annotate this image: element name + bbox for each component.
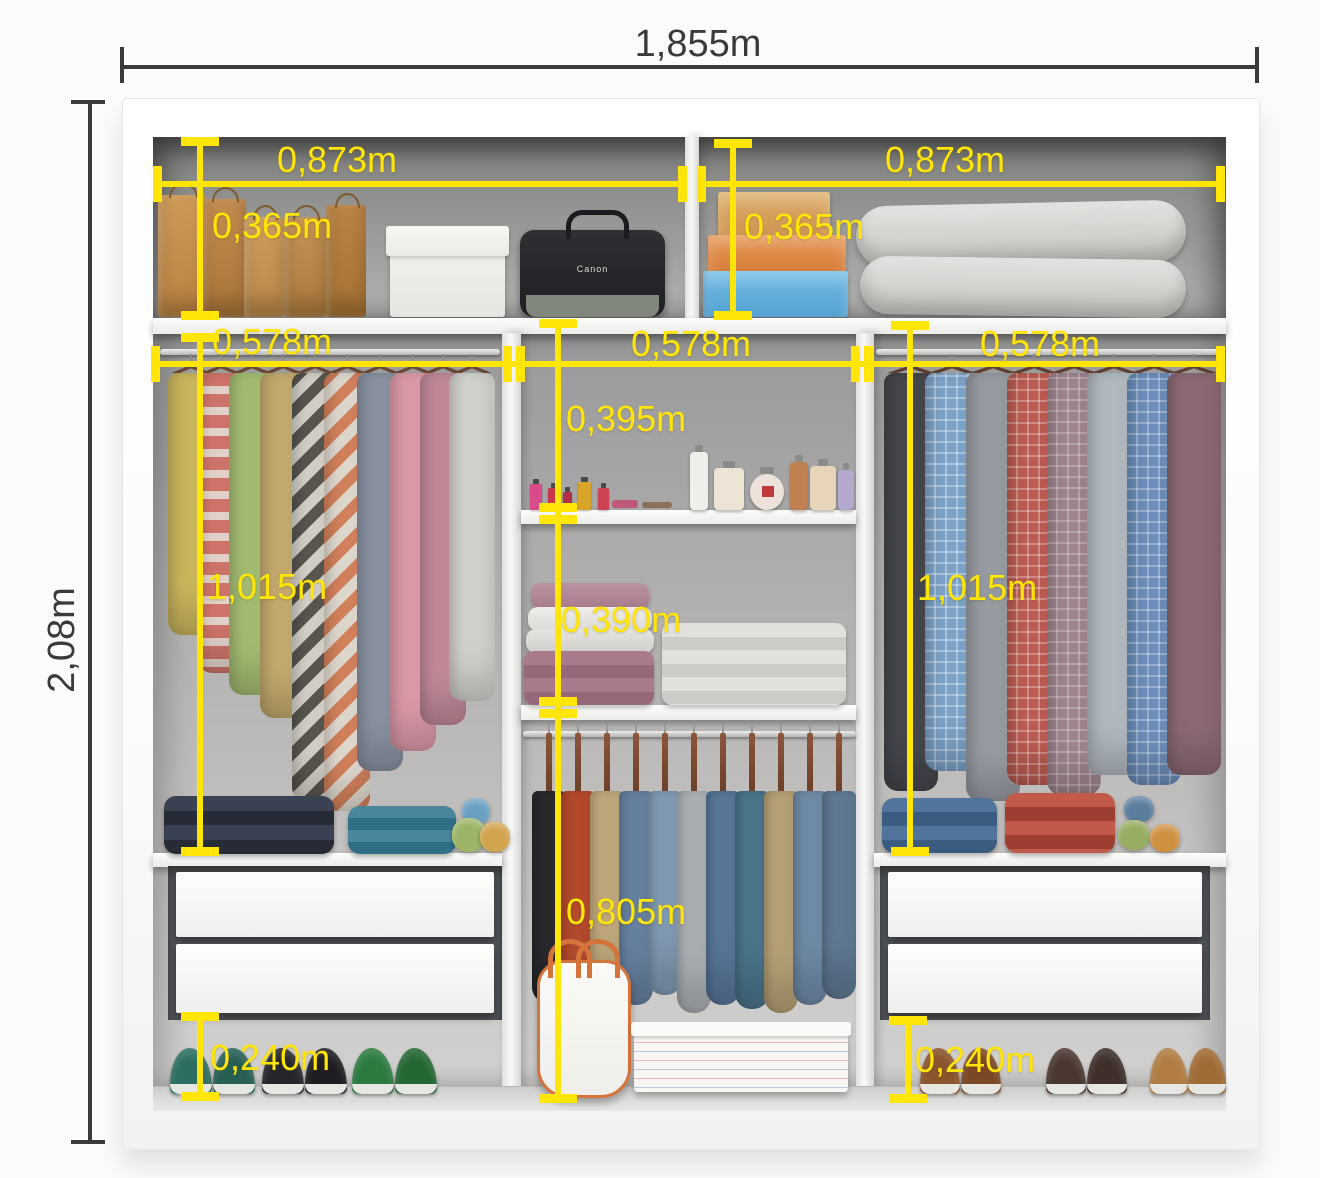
- wooden-hanger: [720, 733, 726, 795]
- dim-left-hanging-height-label: 1,015m: [207, 567, 327, 607]
- dim-tick: [539, 515, 577, 524]
- dim-tick: [539, 503, 577, 512]
- wooden-hanger: [604, 733, 610, 795]
- makeup-brush: [642, 502, 672, 508]
- perfume-bottle: [810, 466, 836, 510]
- hanger-hook: [751, 724, 753, 733]
- dim-tick: [891, 847, 929, 856]
- dim-tick: [714, 311, 752, 320]
- dim-middle-upper-height-line: [555, 323, 561, 515]
- dim-tick: [851, 346, 860, 382]
- dim-tick: [181, 847, 219, 856]
- dim-middle-towel-height-label: 0,390m: [561, 600, 681, 640]
- dim-middle-hanging-height-label: 0,805m: [566, 892, 686, 932]
- dim-tick: [539, 709, 577, 718]
- rolled-towel: [1124, 796, 1154, 822]
- dim-left-shoe-height-line: [197, 1016, 203, 1096]
- dim-tick: [1216, 166, 1225, 202]
- dim-tick: [891, 321, 929, 330]
- hanger-hook: [577, 724, 579, 733]
- dim-tick: [714, 139, 752, 148]
- wooden-hanger: [575, 733, 581, 795]
- dim-middle-hanging-height-line: [555, 709, 561, 1098]
- hanger-hook: [693, 724, 695, 733]
- dim-tick: [889, 1094, 927, 1103]
- dim-top-left-width-label: 0,873m: [237, 140, 437, 180]
- dim-tick: [151, 346, 160, 382]
- dim-top-right-width-line: [699, 181, 1222, 187]
- perfume-bottle: [838, 470, 854, 510]
- dim-tick: [181, 137, 219, 146]
- hanger-hook: [722, 724, 724, 733]
- dim-top-left-height-line: [197, 141, 203, 315]
- dim-right-shoe-height-label: 0,240m: [915, 1040, 1035, 1080]
- folded-jackets-stack: [1005, 793, 1115, 853]
- dim-tick: [864, 346, 873, 382]
- dim-middle-column-width-label: 0,578m: [591, 324, 791, 364]
- dim-tick: [889, 1016, 927, 1025]
- hanger-hook: [838, 724, 840, 733]
- dim-tick: [539, 1094, 577, 1103]
- dim-top-right-height-label: 0,365m: [744, 207, 864, 247]
- wooden-hanger: [662, 733, 668, 795]
- dim-tick: [539, 697, 577, 706]
- perfume-label: [762, 486, 774, 497]
- wooden-hanger: [691, 733, 697, 795]
- hanger-hook: [548, 724, 550, 733]
- nail-polish: [598, 488, 609, 510]
- duffel-bag: [537, 960, 631, 1098]
- wooden-hanger: [836, 733, 842, 795]
- rolled-towel: [1118, 820, 1150, 850]
- nail-polish: [578, 482, 591, 510]
- dim-right-column-width-label: 0,578m: [940, 324, 1140, 364]
- dim-left-shoe-height-label: 0,240m: [210, 1038, 330, 1078]
- hanging-pants: [822, 791, 856, 999]
- dim-tick: [516, 346, 525, 382]
- lipstick-lying: [612, 500, 638, 508]
- wardrobe-dimension-diagram: 1,855m 2,08m Canon: [0, 0, 1320, 1178]
- dim-right-hanging-height-line: [907, 325, 913, 851]
- wooden-hanger: [778, 733, 784, 795]
- dim-tick: [539, 319, 577, 328]
- hanger-hook: [664, 724, 666, 733]
- dim-top-right-height-line: [730, 143, 736, 315]
- perfume-bottle: [714, 468, 744, 510]
- dim-tick: [1216, 346, 1225, 382]
- perfume-bottle: [790, 462, 808, 510]
- dim-tick: [181, 311, 219, 320]
- dim-tick: [181, 333, 219, 342]
- folded-jeans-stack: [164, 796, 334, 854]
- dim-top-left-height-label: 0,365m: [212, 206, 332, 246]
- dim-left-hanging-height-line: [197, 337, 203, 851]
- folded-jeans-stack: [882, 798, 997, 853]
- rolled-towel: [1150, 824, 1180, 852]
- dim-right-shoe-height-line: [905, 1020, 911, 1098]
- dim-tick: [181, 1092, 219, 1101]
- wooden-hanger: [633, 733, 639, 795]
- dim-middle-upper-height-label: 0,395m: [566, 399, 686, 439]
- dim-tick: [697, 166, 706, 202]
- wooden-hanger: [749, 733, 755, 795]
- dim-tick: [503, 346, 512, 382]
- dim-top-left-width-line: [157, 181, 685, 187]
- rolled-towel: [480, 822, 510, 852]
- folded-towel-stack: [662, 623, 846, 705]
- hanger-hook: [809, 724, 811, 733]
- dim-tick: [678, 166, 687, 202]
- dim-tick: [153, 166, 162, 202]
- dim-right-hanging-height-label: 1,015m: [917, 568, 1037, 608]
- wooden-hanger: [546, 733, 552, 795]
- folded-clothes-stack: [348, 806, 456, 854]
- box-stack: [634, 1034, 848, 1092]
- hanger-hook: [635, 724, 637, 733]
- hanger-hook: [780, 724, 782, 733]
- hanger-hook: [606, 724, 608, 733]
- wooden-hanger: [807, 733, 813, 795]
- dim-top-right-width-label: 0,873m: [845, 140, 1045, 180]
- perfume-bottle: [690, 452, 708, 510]
- dim-tick: [181, 1012, 219, 1021]
